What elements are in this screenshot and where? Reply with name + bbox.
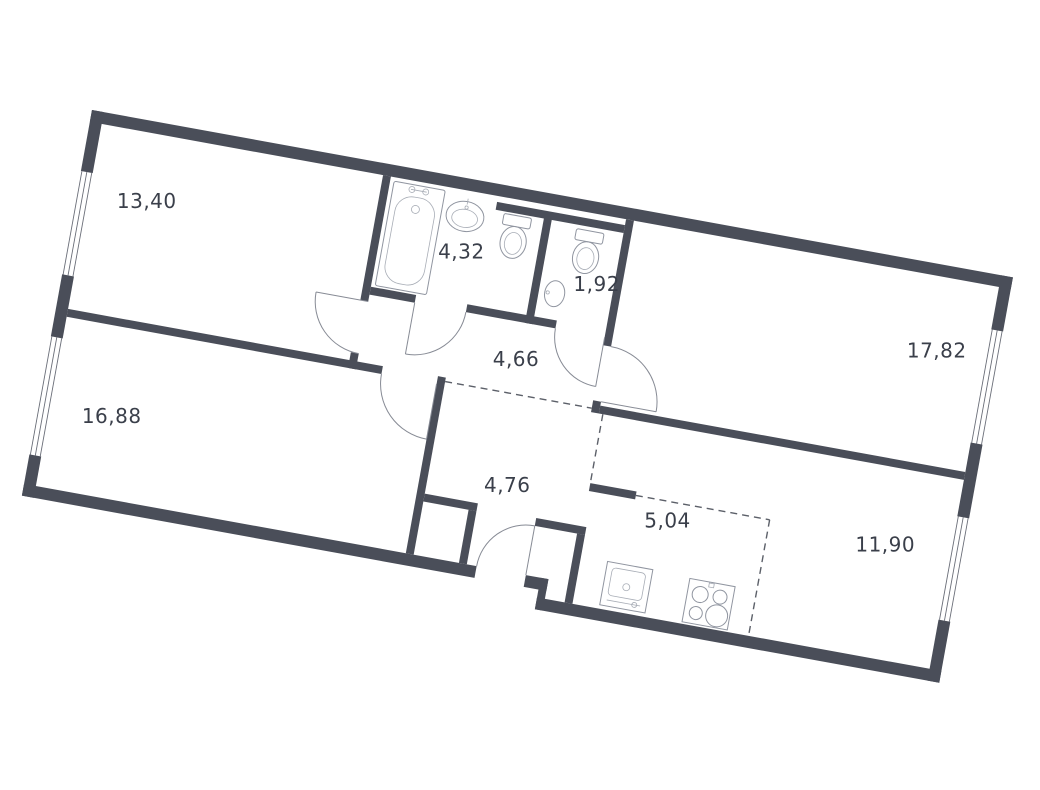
floor-plan: 13,40 4,32 1,92 17,82 4,66 16,88 4,76 5,…	[0, 0, 1040, 790]
room-area-label-bathroom: 4,32	[438, 239, 485, 263]
room-area-label-room-bottom-right: 11,90	[855, 533, 915, 557]
room-area-label-kitchen: 5,04	[644, 508, 691, 532]
room-area-label-living-right: 17,82	[907, 339, 967, 363]
door-living-right	[601, 347, 666, 412]
window-right-bottom	[940, 516, 969, 621]
entrance-door	[477, 517, 535, 575]
door-bedroom-bottom-left	[371, 374, 436, 439]
toilet-small-icon	[569, 229, 604, 276]
window-right-top	[972, 330, 1002, 445]
door-bedroom-top-left	[307, 292, 369, 354]
plan-rotated-group: 13,40 4,32 1,92 17,82 4,66 16,88 4,76 5,…	[18, 110, 1013, 683]
window-left-top	[63, 171, 92, 276]
room-area-label-bedroom-bottom-left: 16,88	[82, 404, 142, 428]
toilet-icon	[496, 213, 531, 260]
washbasin-icon	[444, 195, 487, 234]
room-area-label-hallway: 4,66	[493, 347, 540, 371]
room-area-label-bedroom-top-left: 13,40	[117, 189, 177, 213]
door-bathroom	[405, 303, 465, 363]
stove-icon	[682, 578, 735, 630]
kitchen-sink-icon	[600, 561, 653, 613]
door-wc	[546, 328, 604, 386]
corner-sink-icon	[542, 279, 566, 308]
room-area-label-wc: 1,92	[573, 272, 620, 296]
room-area-label-corridor: 4,76	[484, 473, 531, 497]
floor-plan-page: 13,40 4,32 1,92 17,82 4,66 16,88 4,76 5,…	[0, 0, 1040, 790]
window-left-bottom	[30, 336, 61, 456]
interior-walls	[32, 124, 999, 669]
